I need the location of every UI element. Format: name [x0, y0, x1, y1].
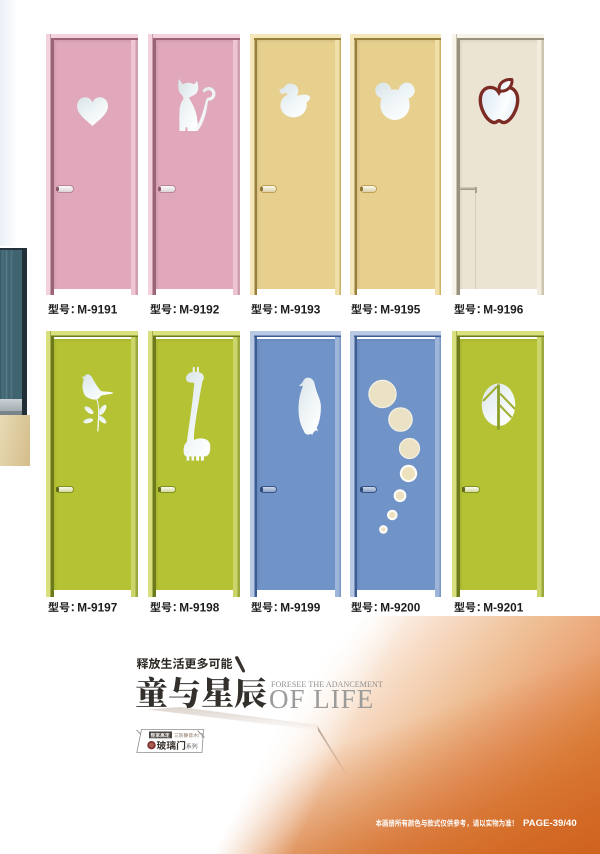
- svg-text:M-9198: M-9198: [179, 600, 219, 614]
- svg-text:M-9193: M-9193: [280, 302, 320, 316]
- svg-text:M-9191: M-9191: [77, 302, 117, 316]
- svg-text:M-9195: M-9195: [380, 302, 420, 316]
- svg-text:PAGE-39/40: PAGE-39/40: [523, 818, 577, 829]
- svg-text:M-9196: M-9196: [483, 302, 523, 316]
- svg-text:M-9199: M-9199: [280, 600, 320, 614]
- svg-text:M-9200: M-9200: [380, 600, 420, 614]
- svg-text:M-9201: M-9201: [483, 600, 523, 614]
- svg-text:M-9197: M-9197: [77, 600, 117, 614]
- svg-text:M-9192: M-9192: [179, 302, 219, 316]
